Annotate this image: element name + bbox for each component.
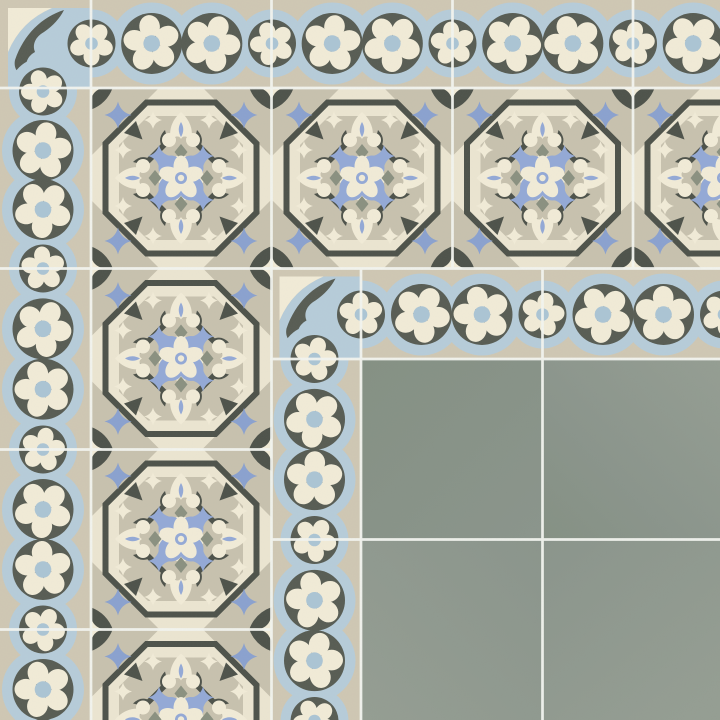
- tile-floor-photo: Top-left corner of a tiled floor: an out…: [0, 0, 720, 720]
- tile-floor-svg: [0, 0, 720, 720]
- photo-grain-overlay: [0, 0, 720, 720]
